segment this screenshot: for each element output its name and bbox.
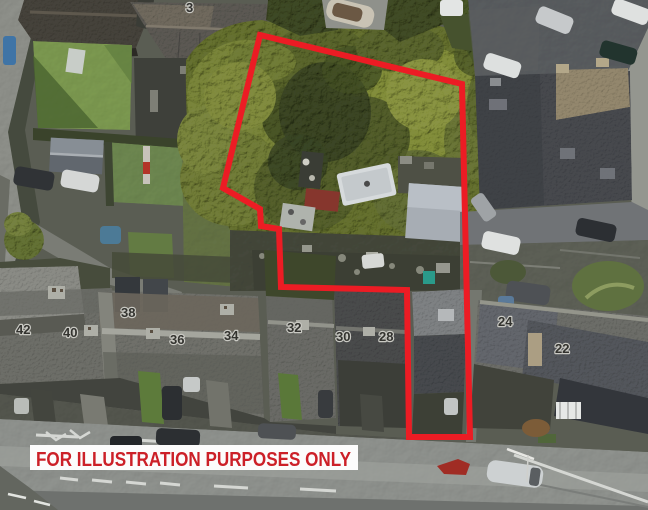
svg-text:24: 24	[498, 314, 513, 329]
svg-text:32: 32	[287, 320, 301, 335]
svg-text:FOR ILLUSTRATION PURPOSES ONLY: FOR ILLUSTRATION PURPOSES ONLY	[36, 449, 352, 471]
svg-text:30: 30	[336, 329, 350, 344]
svg-text:36: 36	[170, 332, 184, 347]
svg-text:38: 38	[121, 305, 135, 320]
svg-text:22: 22	[555, 341, 569, 356]
svg-text:34: 34	[224, 328, 239, 343]
svg-text:28: 28	[379, 329, 393, 344]
svg-text:3: 3	[186, 0, 193, 15]
svg-text:40: 40	[63, 325, 77, 340]
svg-text:42: 42	[16, 322, 30, 337]
